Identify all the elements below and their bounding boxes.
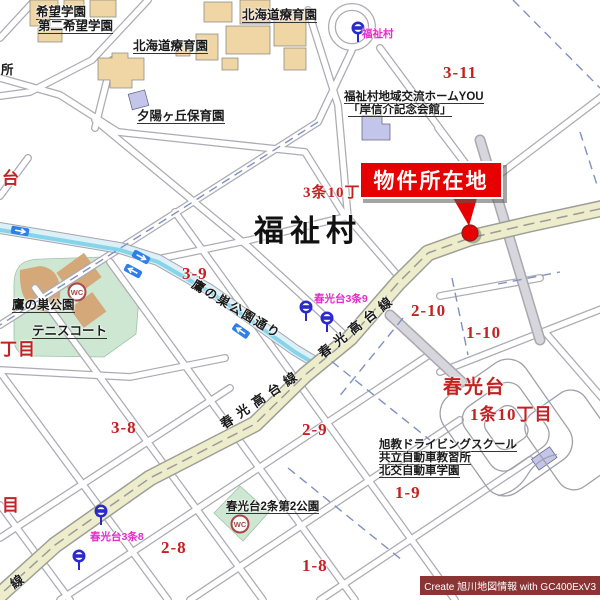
watermark-credit: Create 旭川地図情報 with GC400ExV3 <box>420 576 600 595</box>
property-marker <box>462 225 478 241</box>
map-screenshot: WC WC 希望学園 第二希望学園 北海道療育園 北海道療育園 夕陽ヶ丘保育園 … <box>0 0 600 600</box>
property-marker-layer <box>0 0 600 600</box>
callout-pointer <box>453 198 477 226</box>
property-location-callout: 物件所在地 <box>359 161 503 199</box>
